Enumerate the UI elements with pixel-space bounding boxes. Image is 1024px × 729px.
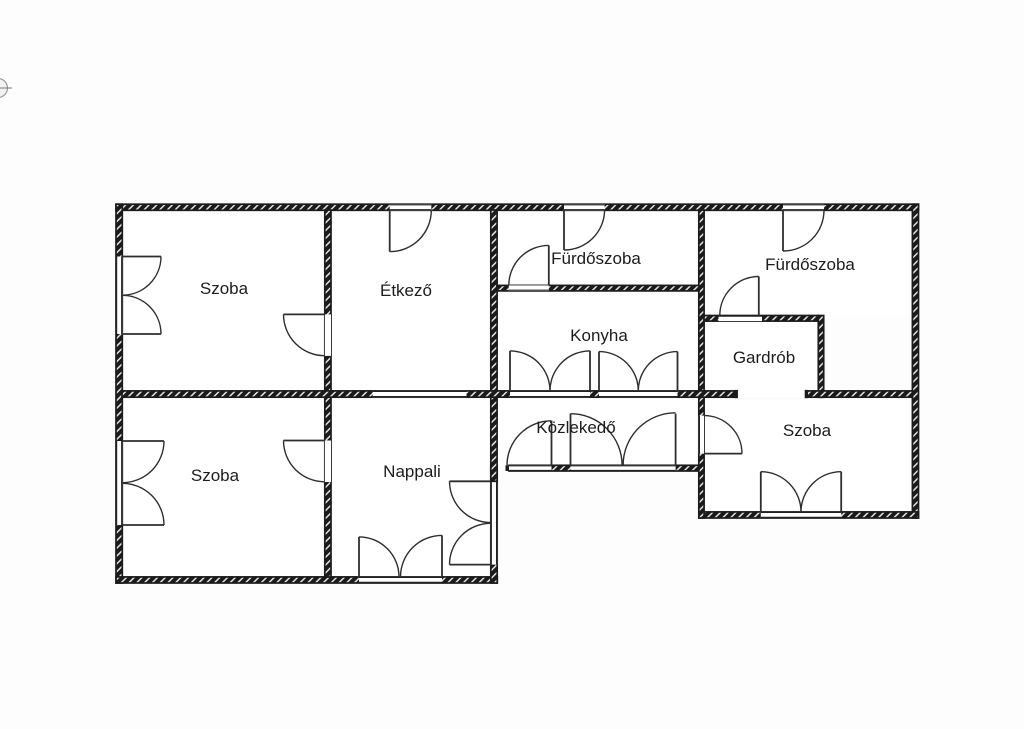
svg-text:Nappali: Nappali xyxy=(383,462,441,481)
svg-text:Közlekedő: Közlekedő xyxy=(536,418,615,437)
svg-text:Fürdőszoba: Fürdőszoba xyxy=(765,255,855,274)
svg-text:Szoba: Szoba xyxy=(191,466,240,485)
svg-text:Szoba: Szoba xyxy=(783,421,832,440)
svg-text:Gardrób: Gardrób xyxy=(733,348,795,367)
svg-text:Konyha: Konyha xyxy=(570,326,628,345)
svg-text:Fürdőszoba: Fürdőszoba xyxy=(551,249,641,268)
svg-text:Szoba: Szoba xyxy=(200,279,249,298)
svg-text:Étkező: Étkező xyxy=(380,281,432,300)
